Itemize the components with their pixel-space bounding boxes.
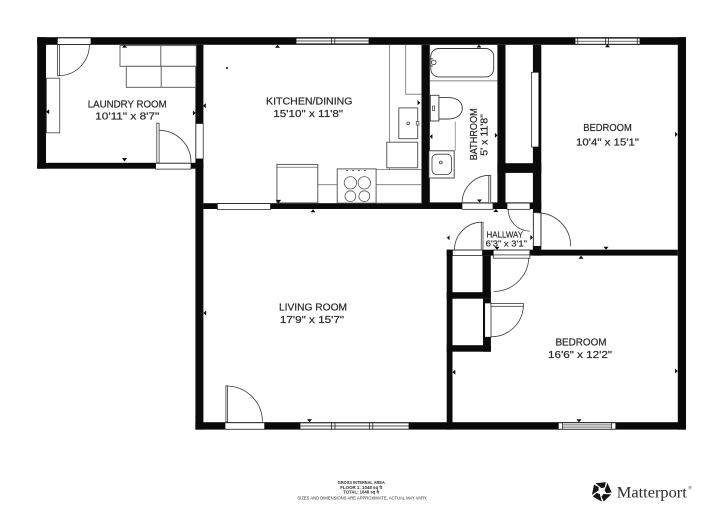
svg-text:KITCHEN/DINING: KITCHEN/DINING — [266, 95, 353, 107]
svg-text:6'3" x 3'1": 6'3" x 3'1" — [486, 239, 527, 248]
svg-text:10'11" x 8'7": 10'11" x 8'7" — [95, 110, 159, 122]
svg-text:LAUNDRY ROOM: LAUNDRY ROOM — [88, 99, 167, 111]
svg-text:LIVING ROOM: LIVING ROOM — [279, 301, 347, 313]
svg-text:10'4" x 15'1": 10'4" x 15'1" — [576, 136, 639, 148]
svg-text:TOTAL: 1048 sq ft: TOTAL: 1048 sq ft — [343, 490, 379, 495]
svg-text:BEDROOM: BEDROOM — [555, 337, 606, 349]
svg-text:17'9" x 15'7": 17'9" x 15'7" — [280, 314, 344, 326]
svg-text:GROSS INTERNAL AREA: GROSS INTERNAL AREA — [338, 480, 386, 485]
svg-text:16'6" x 12'2": 16'6" x 12'2" — [548, 349, 612, 361]
svg-text:BEDROOM: BEDROOM — [583, 122, 632, 134]
svg-text:SIZES AND DIMENSIONS ARE APPRO: SIZES AND DIMENSIONS ARE APPROXIMATE, AC… — [297, 495, 427, 500]
svg-text:15'10" x 11'8": 15'10" x 11'8" — [273, 108, 343, 120]
svg-text:HALLWAY: HALLWAY — [487, 231, 524, 240]
svg-text:5' x 11'8": 5' x 11'8" — [479, 114, 491, 156]
svg-text:Matterport: Matterport — [617, 484, 688, 501]
